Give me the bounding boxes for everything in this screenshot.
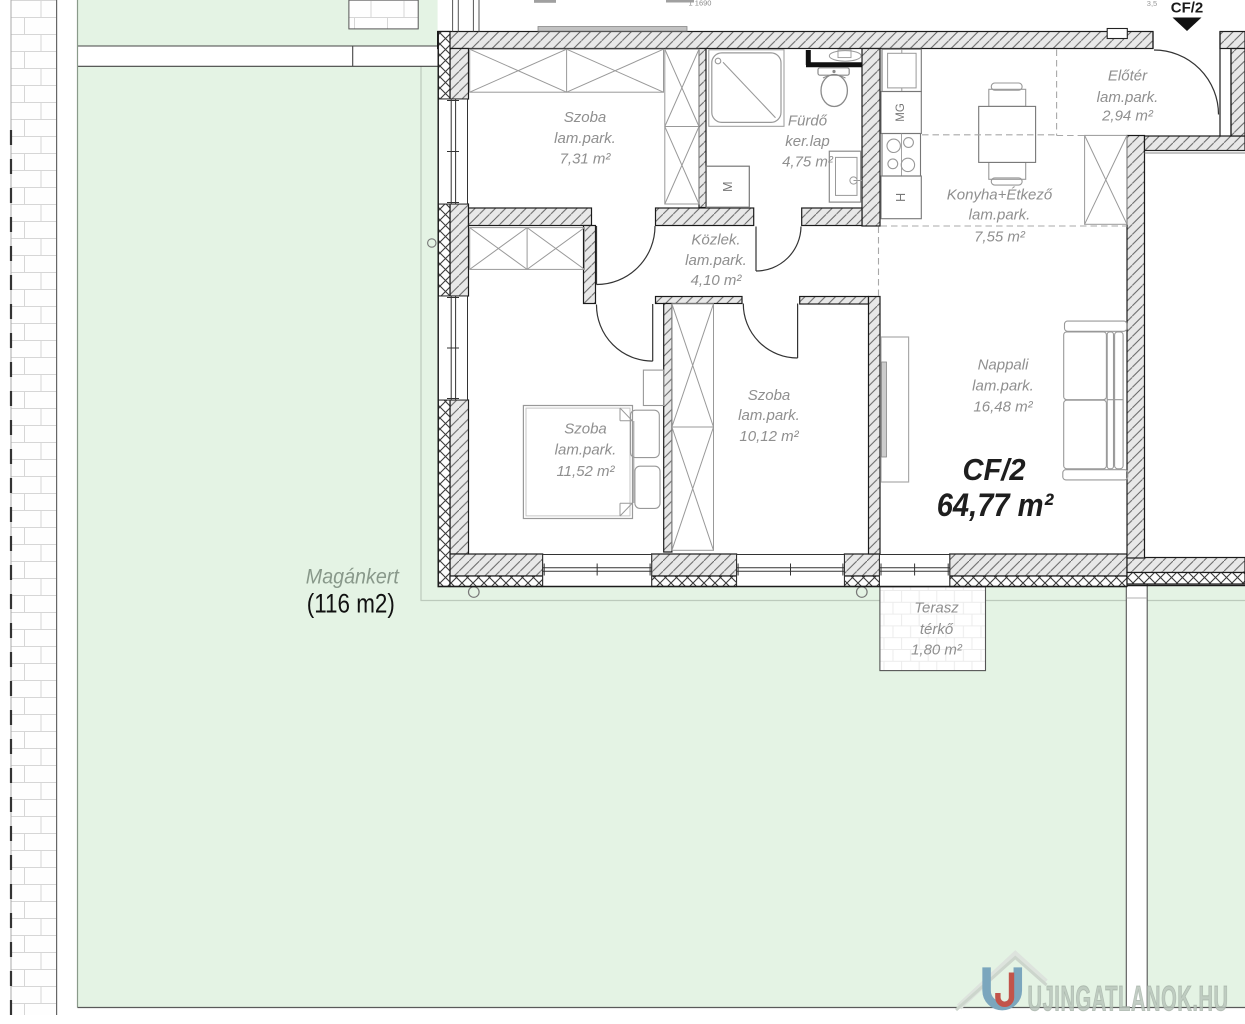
- svg-text:ker.lap: ker.lap: [785, 133, 829, 150]
- svg-text:7,55 m²: 7,55 m²: [974, 228, 1026, 245]
- svg-text:lam.park.: lam.park.: [555, 442, 617, 459]
- svg-text:3,5: 3,5: [1147, 0, 1157, 8]
- svg-text:lam.park.: lam.park.: [1097, 89, 1159, 106]
- svg-text:11,52 m²: 11,52 m²: [556, 463, 615, 480]
- svg-text:16,48 m²: 16,48 m²: [973, 398, 1033, 415]
- svg-text:CF/2: CF/2: [1171, 0, 1204, 17]
- svg-text:(116 m2): (116 m2): [307, 589, 395, 619]
- svg-text:Magánkert: Magánkert: [306, 565, 400, 589]
- svg-text:lam.park.: lam.park.: [685, 252, 747, 269]
- svg-text:4,10 m²: 4,10 m²: [691, 272, 743, 289]
- svg-text:Fürdő: Fürdő: [788, 112, 828, 129]
- svg-text:Szoba: Szoba: [748, 387, 791, 404]
- svg-text:lam.park.: lam.park.: [972, 378, 1034, 395]
- svg-text:64,77 m²: 64,77 m²: [937, 487, 1055, 523]
- svg-text:M: M: [721, 181, 735, 191]
- svg-text:Nappali: Nappali: [978, 357, 1030, 374]
- svg-text:Szoba: Szoba: [564, 421, 607, 438]
- svg-text:lam.park.: lam.park.: [738, 407, 800, 424]
- svg-text:Előtér: Előtér: [1108, 67, 1148, 84]
- svg-text:lam.park.: lam.park.: [554, 130, 616, 147]
- svg-text:UJINGATLANOK.HU: UJINGATLANOK.HU: [1028, 980, 1229, 1019]
- svg-text:H: H: [894, 193, 908, 202]
- svg-text:7,31 m²: 7,31 m²: [560, 151, 612, 168]
- svg-text:Közlek.: Közlek.: [691, 231, 740, 248]
- svg-text:Szoba: Szoba: [564, 109, 607, 126]
- svg-text:CF/2: CF/2: [963, 452, 1026, 487]
- svg-text:Konyha+Étkező: Konyha+Étkező: [947, 187, 1053, 204]
- svg-text:MG: MG: [895, 103, 907, 122]
- svg-text:lam.park.: lam.park.: [969, 206, 1031, 223]
- svg-text:Terasz: Terasz: [914, 600, 959, 617]
- svg-text:1,80 m²: 1,80 m²: [911, 642, 963, 659]
- svg-text:10,12 m²: 10,12 m²: [739, 428, 799, 445]
- svg-text:2,94 m²: 2,94 m²: [1101, 108, 1154, 125]
- svg-text:4,75 m²: 4,75 m²: [782, 153, 834, 170]
- svg-text:térkő: térkő: [920, 621, 954, 638]
